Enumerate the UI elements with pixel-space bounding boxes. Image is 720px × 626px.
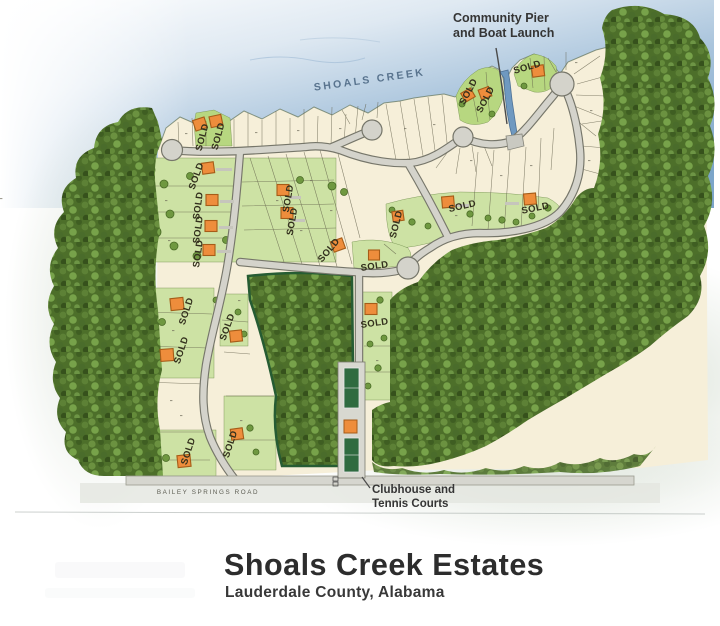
clubhouse-building (344, 420, 357, 433)
pier-annotation-line1: Community Pier (453, 11, 549, 25)
site-map: SOLD SOLD SOLD SOLD SOLD SOLD SOLD SOLD … (0, 0, 720, 626)
clubhouse-annotation-line2: Tennis Courts (372, 498, 448, 510)
page-title: Shoals Creek Estates (224, 548, 544, 582)
clubhouse-area (333, 362, 365, 486)
pier-annotation-line2: and Boat Launch (453, 26, 554, 40)
clubhouse-annotation-line1: Clubhouse and (372, 484, 455, 496)
page-subtitle: Lauderdale County, Alabama (225, 584, 445, 601)
ghost-mark (55, 562, 185, 578)
ghost-mark (45, 588, 195, 598)
plat-map-page: SOLD SOLD SOLD SOLD SOLD SOLD SOLD SOLD … (0, 0, 720, 626)
bailey-road-label: BAILEY SPRINGS ROAD (157, 489, 259, 496)
